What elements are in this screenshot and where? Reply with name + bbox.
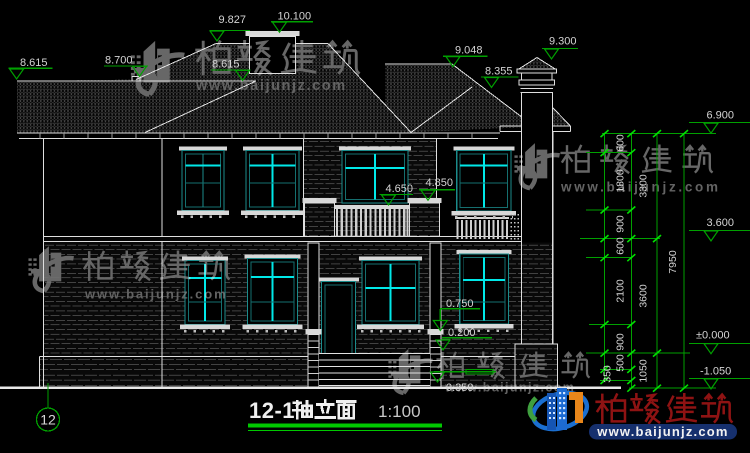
svg-text:900: 900 (615, 333, 627, 351)
svg-text:9.048: 9.048 (455, 45, 483, 57)
svg-text:900: 900 (615, 215, 627, 233)
svg-text:www.baijunjz.com: www.baijunjz.com (84, 287, 228, 302)
svg-text:6.900: 6.900 (707, 109, 735, 121)
svg-text:12: 12 (40, 412, 56, 428)
svg-text:8.615: 8.615 (212, 59, 240, 71)
svg-text:7950: 7950 (667, 250, 679, 274)
svg-text:1:100: 1:100 (378, 402, 421, 421)
svg-text:0.350: 0.350 (446, 382, 474, 394)
svg-text:1050: 1050 (638, 359, 650, 383)
svg-text:9.827: 9.827 (219, 14, 247, 26)
svg-text:500: 500 (615, 354, 627, 372)
svg-text:2100: 2100 (615, 279, 627, 303)
svg-text:4.850: 4.850 (426, 177, 454, 189)
svg-text:0.750: 0.750 (446, 298, 474, 310)
svg-text:3.600: 3.600 (707, 217, 735, 229)
svg-text:8.615: 8.615 (20, 57, 48, 69)
svg-text:8.700: 8.700 (105, 55, 133, 67)
svg-text:8.355: 8.355 (485, 66, 513, 78)
svg-text:0.200: 0.200 (448, 327, 476, 339)
svg-text:-1.050: -1.050 (700, 365, 731, 377)
svg-text:4.650: 4.650 (386, 183, 414, 195)
svg-text:1800: 1800 (615, 169, 627, 193)
svg-text:12-1: 12-1 (249, 398, 295, 423)
svg-text:9.300: 9.300 (549, 35, 577, 47)
svg-text:3600: 3600 (638, 284, 650, 308)
svg-text:600: 600 (615, 237, 627, 255)
svg-text:www.baijunjz.com: www.baijunjz.com (195, 78, 347, 94)
svg-text:600: 600 (615, 134, 627, 152)
svg-text:10.100: 10.100 (278, 10, 312, 22)
svg-text:3300: 3300 (638, 174, 650, 198)
svg-text:350: 350 (602, 365, 614, 383)
svg-text:±0.000: ±0.000 (696, 330, 730, 342)
svg-text:www.baijunjz.com: www.baijunjz.com (596, 424, 728, 439)
